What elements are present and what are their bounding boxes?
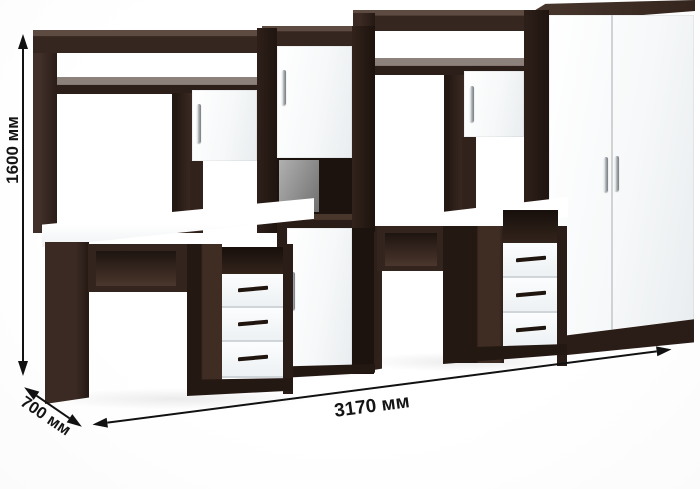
wardrobe-doors <box>549 15 694 337</box>
right-hutch-divider <box>444 75 464 232</box>
left-desk-drawers <box>222 274 283 378</box>
drawer <box>222 342 283 378</box>
column-lower-right-side <box>352 228 374 374</box>
arrowhead <box>92 418 108 430</box>
left-desk-pedestal-edge <box>283 244 293 394</box>
left-hutch-door <box>192 90 257 161</box>
arrow-shaft <box>22 49 25 361</box>
wardrobe-handle-right <box>615 156 619 191</box>
right-desk-under-shelf-niche <box>385 233 437 266</box>
left-hutch-top-beam <box>33 30 265 53</box>
left-desk-under-shelf-niche <box>96 251 176 286</box>
height-arrow-icon <box>17 34 29 376</box>
left-desk-pedestal-wall <box>187 244 222 394</box>
drawer <box>503 278 558 313</box>
column-right-post <box>352 26 375 232</box>
left-hutch-door-handle <box>197 104 201 143</box>
furniture-dimension-render: 1600 мм 700 мм 3170 мм <box>0 0 700 489</box>
drawer-handle <box>516 291 546 298</box>
left-desk-pedestal-niche <box>222 247 283 274</box>
height-dimension-label: 1600 мм <box>3 110 25 190</box>
drawer-handle <box>516 256 546 263</box>
arrowhead <box>18 361 28 376</box>
right-hutch-right-post <box>524 10 549 228</box>
drawer <box>503 313 558 348</box>
wardrobe-handle-left <box>604 157 608 192</box>
right-desk-pedestal-wall <box>443 226 504 363</box>
wardrobe-door-seam <box>611 15 613 337</box>
drawer <box>503 243 558 278</box>
left-desk-left-panel <box>45 242 89 404</box>
left-hutch-left-post <box>33 30 57 233</box>
right-hutch-top-beam <box>353 10 549 31</box>
drawer-handle <box>238 355 268 362</box>
drawer-handle <box>238 286 268 293</box>
drawer-handle <box>516 326 546 333</box>
right-desk-drawers <box>503 243 558 348</box>
column-upper-door-handle <box>282 70 286 105</box>
drawer <box>222 274 283 308</box>
right-desk-pedestal-niche <box>503 210 558 243</box>
column-lower-door <box>287 228 352 367</box>
drawer <box>222 308 283 342</box>
arrowhead <box>656 344 672 356</box>
drawer-handle <box>238 320 268 327</box>
arrowhead <box>18 34 28 49</box>
right-hutch-door-handle <box>470 86 474 122</box>
column-upper-door <box>277 46 352 158</box>
